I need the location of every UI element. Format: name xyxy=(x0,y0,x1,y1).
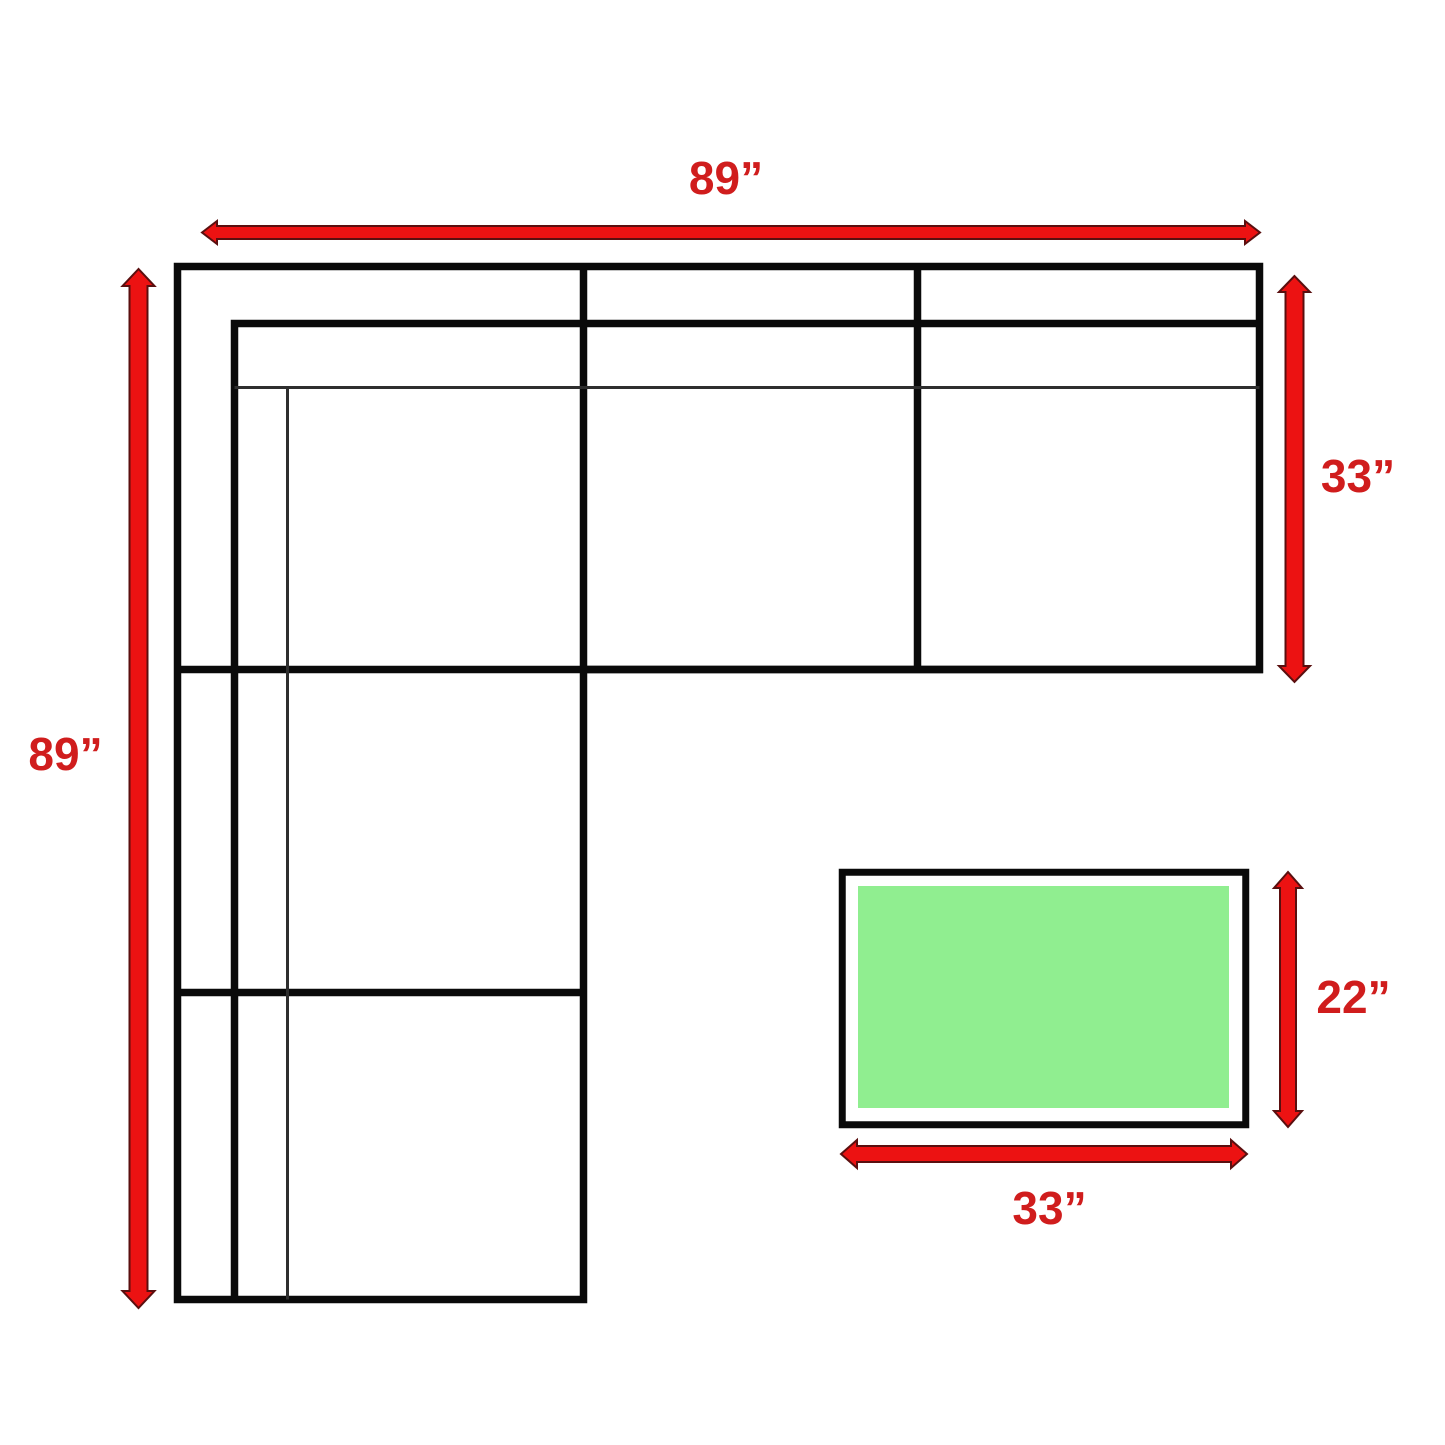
svg-text:89”: 89” xyxy=(689,152,763,204)
svg-text:33”: 33” xyxy=(1012,1182,1086,1234)
svg-text:22”: 22” xyxy=(1316,971,1390,1023)
svg-text:33”: 33” xyxy=(1321,450,1395,502)
svg-text:89”: 89” xyxy=(28,728,102,780)
